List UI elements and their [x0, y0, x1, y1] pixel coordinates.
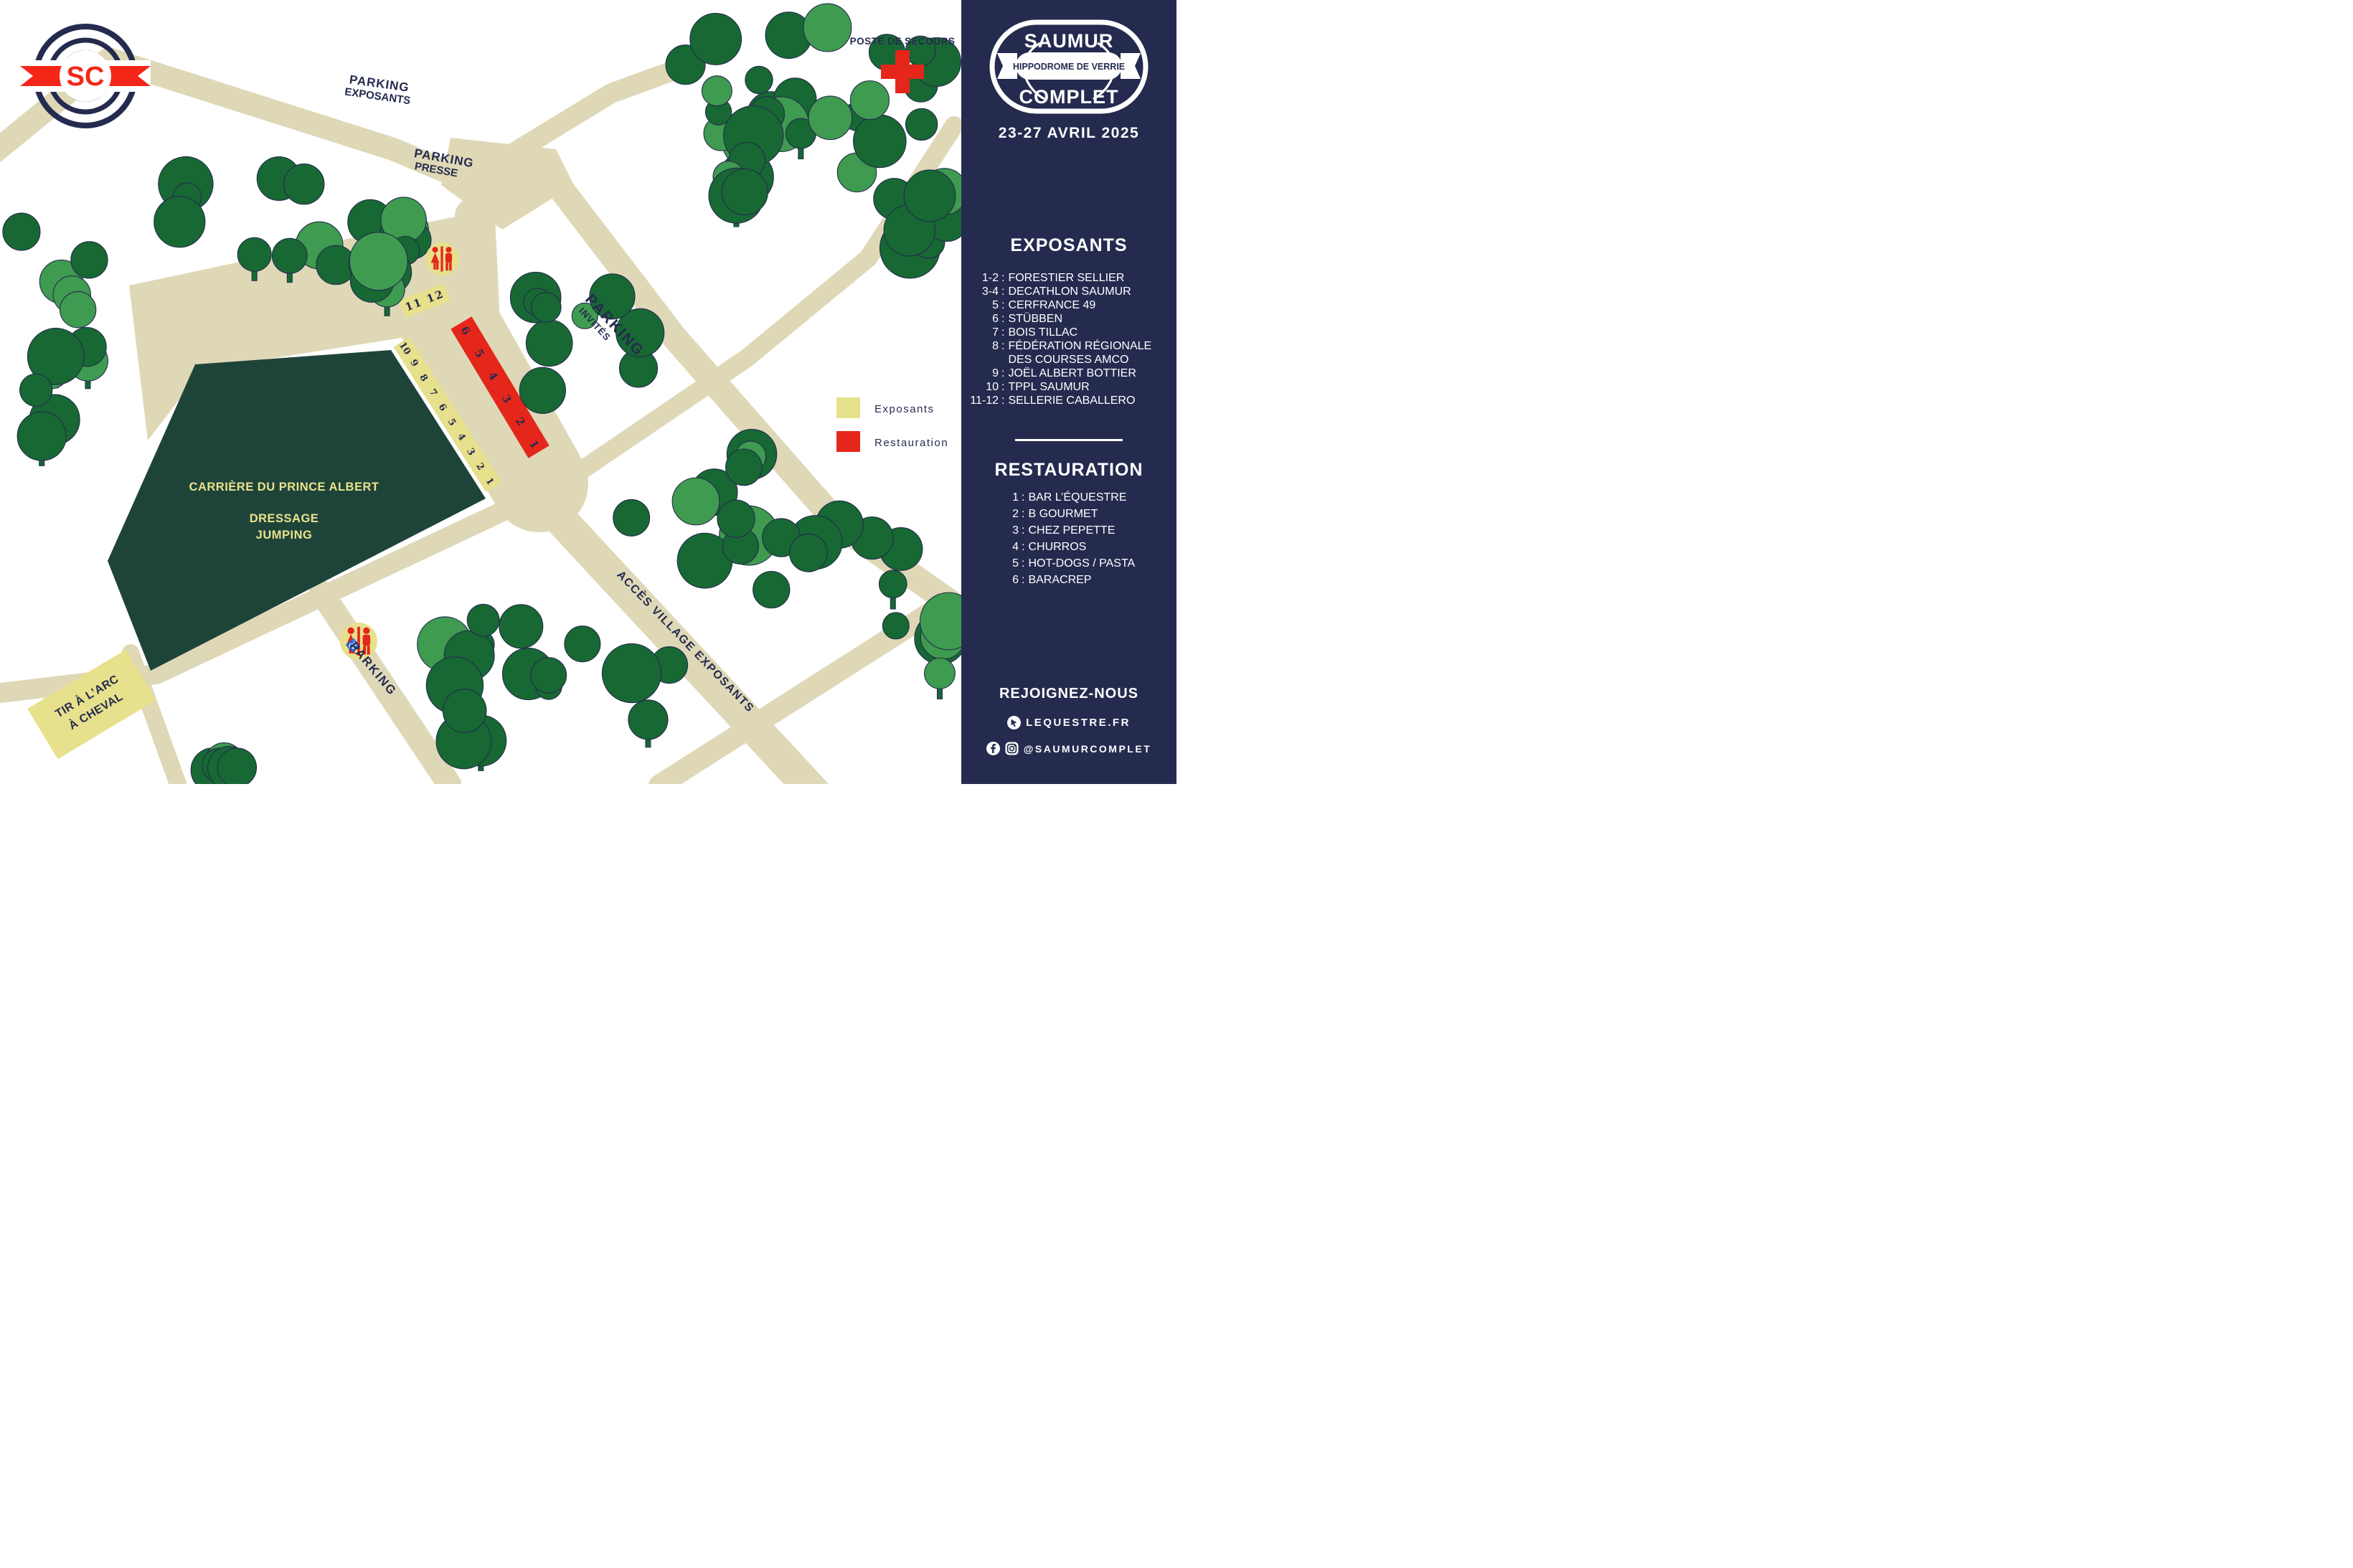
- item-num: 9: [961, 367, 999, 380]
- event-map-page: 11 12 10987654321654321 SC: [0, 0, 1176, 784]
- item-num: 1-2: [961, 271, 999, 285]
- tree-canopy: [60, 292, 96, 328]
- tree-canopy: [753, 571, 790, 608]
- item-name: HOT-DOGS / PASTA: [1028, 555, 1135, 572]
- website-row[interactable]: LEQUESTRE.FR: [961, 716, 1176, 729]
- tree-canopy: [906, 108, 938, 140]
- tree-canopy: [284, 164, 324, 204]
- tree-canopy: [602, 643, 661, 702]
- arena-title: CARRIÈRE DU PRINCE ALBERT: [189, 480, 379, 493]
- item-name: BARACREP: [1028, 572, 1091, 588]
- tree-canopy: [850, 81, 889, 120]
- tree-cluster: [666, 4, 877, 227]
- tree-canopy: [526, 320, 572, 367]
- item-num: 11-12: [961, 394, 999, 407]
- restauration-list: 1:BAR L’ÉQUESTRE 2:B GOURMET 3:CHEZ PEPE…: [961, 489, 1176, 588]
- tree-canopy: [532, 293, 561, 322]
- item-name: CHURROS: [1028, 539, 1086, 555]
- item-num: 2: [961, 506, 1019, 522]
- list-item: 1-2:FORESTIER SELLIER: [961, 271, 1176, 285]
- item-colon: :: [999, 380, 1008, 394]
- item-num: 5: [961, 298, 999, 312]
- item-num: 5: [961, 555, 1019, 572]
- tree-canopy: [71, 242, 108, 278]
- facebook-icon[interactable]: [986, 742, 1000, 755]
- tree-canopy: [745, 66, 773, 93]
- item-colon: :: [999, 285, 1008, 298]
- list-item: 10:TPPL SAUMUR: [961, 380, 1176, 394]
- item-num: 6: [961, 572, 1019, 588]
- tree-cluster: [3, 213, 108, 466]
- tree-canopy: [722, 169, 768, 214]
- list-item: 9:JOËL ALBERT BOTTIER: [961, 367, 1176, 380]
- tree-canopy: [17, 412, 66, 461]
- legend-exposants-label: Exposants: [874, 403, 935, 415]
- list-item: 8:FÉDÉRATION RÉGIONALE DES COURSES AMCO: [961, 339, 1176, 367]
- tree-canopy: [854, 115, 907, 168]
- restauration-heading: RESTAURATION: [961, 460, 1176, 481]
- list-item: 2:B GOURMET: [961, 506, 1176, 522]
- item-colon: :: [999, 298, 1008, 312]
- list-item: 1:BAR L’ÉQUESTRE: [961, 489, 1176, 506]
- exposants-heading: EXPOSANTS: [961, 235, 1176, 256]
- list-item: 3:CHEZ PEPETTE: [961, 522, 1176, 539]
- saumur-complet-logo: SAUMUR HIPPODROME DE VERRIE COMPLET: [989, 19, 1149, 115]
- item-colon: :: [999, 271, 1008, 285]
- arena-dressage: DRESSAGE: [250, 512, 319, 525]
- tree-canopy: [443, 689, 486, 733]
- item-colon: :: [999, 339, 1008, 353]
- list-item: 5:HOT-DOGS / PASTA: [961, 555, 1176, 572]
- item-name: JOËL ALBERT BOTTIER: [1008, 367, 1136, 380]
- item-colon: :: [1019, 539, 1028, 555]
- toilets-icon-north: [425, 242, 458, 275]
- item-name: FORESTIER SELLIER: [1008, 271, 1124, 285]
- website-label[interactable]: LEQUESTRE.FR: [1026, 717, 1131, 729]
- event-dates: 23-27 AVRIL 2025: [961, 125, 1176, 142]
- tree-canopy: [879, 570, 907, 598]
- list-item: 11-12:SELLERIE CABALLERO: [961, 394, 1176, 407]
- tree-canopy: [613, 499, 650, 536]
- tree-canopy: [717, 500, 755, 537]
- map-legend: Exposants Restauration: [836, 397, 948, 452]
- item-colon: :: [999, 394, 1008, 407]
- tree-canopy: [519, 367, 565, 413]
- tree-canopy: [904, 170, 956, 222]
- tree-canopy: [272, 238, 307, 273]
- item-name: TPPL SAUMUR: [1008, 380, 1089, 394]
- tree-canopy: [20, 374, 52, 406]
- item-num: 1: [961, 489, 1019, 506]
- tree-canopy: [217, 748, 256, 784]
- list-item: 6:BARACREP: [961, 572, 1176, 588]
- item-num: 7: [961, 326, 999, 339]
- item-num: 10: [961, 380, 999, 394]
- item-num: 3: [961, 522, 1019, 539]
- logo-hippodrome: HIPPODROME DE VERRIE: [1013, 62, 1125, 72]
- tree-cluster: [191, 743, 256, 784]
- item-colon: :: [999, 312, 1008, 326]
- item-colon: :: [1019, 506, 1028, 522]
- tree-canopy: [803, 4, 852, 52]
- tree-canopy: [702, 76, 732, 106]
- tree-canopy: [690, 14, 742, 65]
- list-item: 6:STÜBBEN: [961, 312, 1176, 326]
- logo-saumur: SAUMUR: [1024, 30, 1114, 52]
- instagram-icon[interactable]: [1005, 742, 1019, 755]
- section-divider: [1015, 439, 1123, 441]
- tree-canopy: [808, 96, 852, 140]
- item-colon: :: [1019, 522, 1028, 539]
- legend-swatch-restauration: [836, 431, 860, 452]
- item-name: STÜBBEN: [1008, 312, 1062, 326]
- list-item: 4:CHURROS: [961, 539, 1176, 555]
- tree-canopy: [628, 700, 668, 740]
- tree-canopy: [565, 626, 600, 662]
- item-name: BAR L’ÉQUESTRE: [1028, 489, 1126, 506]
- item-name: DECATHLON SAUMUR: [1008, 285, 1131, 298]
- poste-de-secours-label: POSTE DE SECOURS: [850, 36, 956, 47]
- item-num: 3-4: [961, 285, 999, 298]
- social-label[interactable]: @SAUMURCOMPLET: [1024, 743, 1152, 755]
- tree-canopy: [672, 478, 720, 525]
- item-name: BOIS TILLAC: [1008, 326, 1078, 339]
- site-map: 11 12 10987654321654321 SC: [0, 0, 961, 784]
- list-item: 3-4:DECATHLON SAUMUR: [961, 285, 1176, 298]
- tree-canopy: [789, 534, 827, 572]
- tree-canopy: [499, 605, 543, 648]
- tree-canopy: [154, 197, 205, 247]
- item-name: B GOURMET: [1028, 506, 1098, 522]
- info-sidebar: SAUMUR HIPPODROME DE VERRIE COMPLET 23-2…: [961, 0, 1176, 784]
- item-colon: :: [1019, 555, 1028, 572]
- item-colon: :: [999, 326, 1008, 339]
- item-num: 4: [961, 539, 1019, 555]
- legend-restauration-label: Restauration: [874, 437, 948, 449]
- item-colon: :: [1019, 489, 1028, 506]
- item-colon: :: [1019, 572, 1028, 588]
- logo-complet: COMPLET: [1019, 86, 1119, 108]
- list-item: 5:CERFRANCE 49: [961, 298, 1176, 312]
- item-name: CERFRANCE 49: [1008, 298, 1095, 312]
- list-item: 7:BOIS TILLAC: [961, 326, 1176, 339]
- tree-canopy: [882, 613, 909, 639]
- legend-swatch-exposants: [836, 397, 860, 418]
- arena-jumping: JUMPING: [256, 529, 313, 542]
- tree-canopy: [349, 232, 407, 291]
- tree-canopy: [467, 604, 499, 636]
- tree-canopy: [925, 658, 956, 689]
- sc-logo-text: SC: [67, 62, 105, 92]
- item-name: SELLERIE CABALLERO: [1008, 394, 1135, 407]
- join-heading: REJOIGNEZ-NOUS: [961, 686, 1176, 702]
- tree-canopy: [726, 449, 763, 486]
- cursor-icon: [1007, 716, 1021, 729]
- item-num: 8: [961, 339, 999, 353]
- social-row[interactable]: @SAUMURCOMPLET: [961, 742, 1176, 755]
- item-name: CHEZ PEPETTE: [1028, 522, 1115, 539]
- tree-canopy: [3, 213, 40, 250]
- item-name: FÉDÉRATION RÉGIONALE DES COURSES AMCO: [1008, 339, 1151, 367]
- item-colon: :: [999, 367, 1008, 380]
- tree-cluster: [613, 430, 923, 609]
- exposants-list: 1-2:FORESTIER SELLIER 3-4:DECATHLON SAUM…: [961, 271, 1176, 407]
- tree-canopy: [531, 658, 567, 694]
- tree-canopy: [237, 237, 271, 271]
- item-num: 6: [961, 312, 999, 326]
